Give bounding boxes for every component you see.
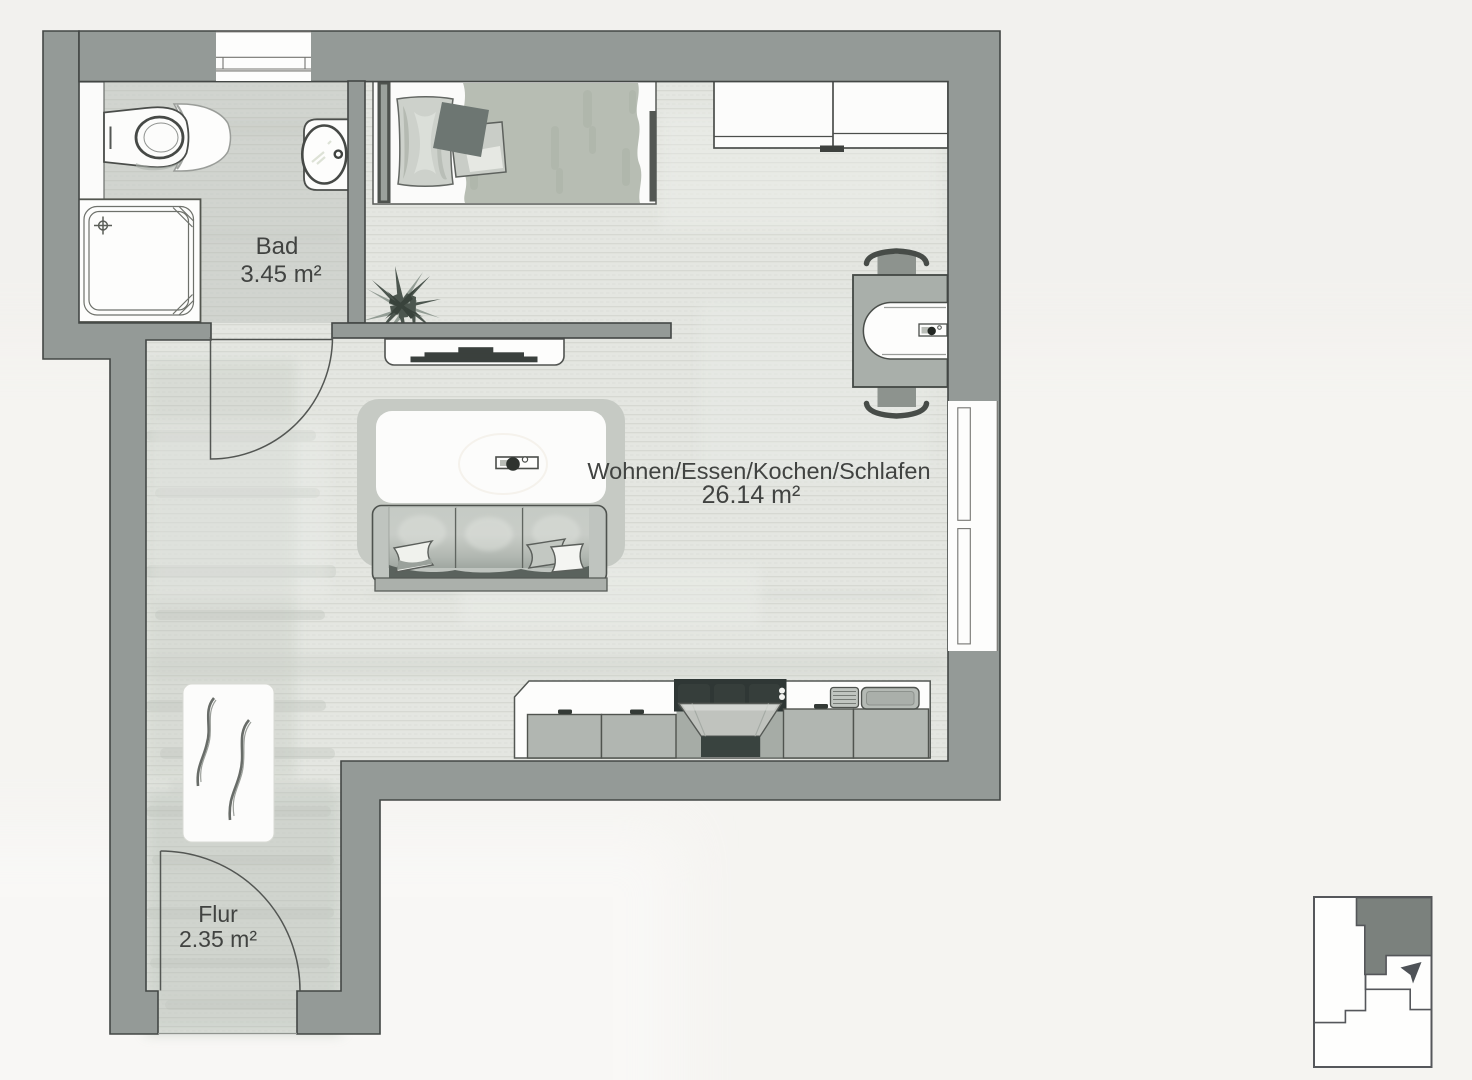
svg-text:Flur: Flur [198, 901, 238, 927]
svg-text:2.35 m²: 2.35 m² [179, 926, 257, 952]
svg-text:3.45 m²: 3.45 m² [240, 261, 321, 288]
svg-text:26.14 m²: 26.14 m² [702, 481, 801, 509]
svg-text:Bad: Bad [256, 233, 299, 260]
